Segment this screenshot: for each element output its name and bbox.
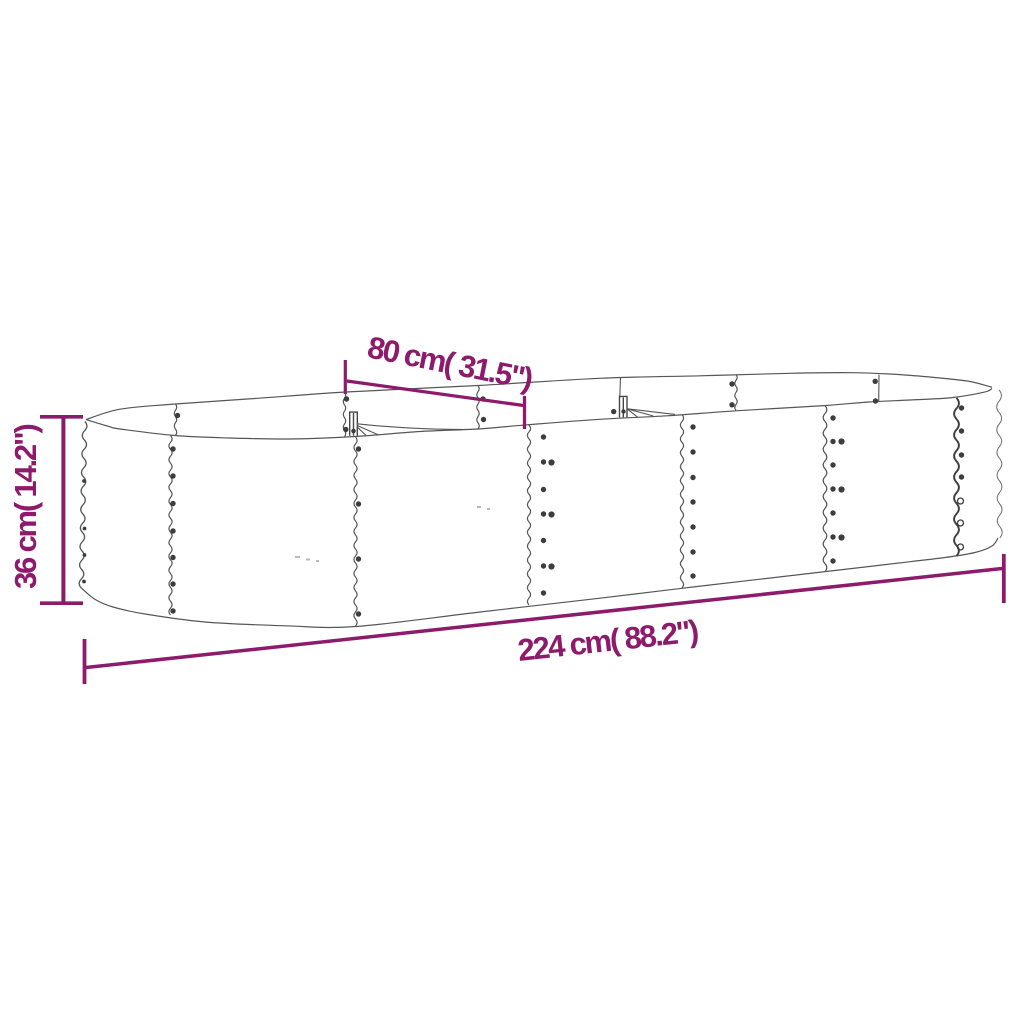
- svg-text:36 cm( 14.2"): 36 cm( 14.2"): [8, 425, 43, 589]
